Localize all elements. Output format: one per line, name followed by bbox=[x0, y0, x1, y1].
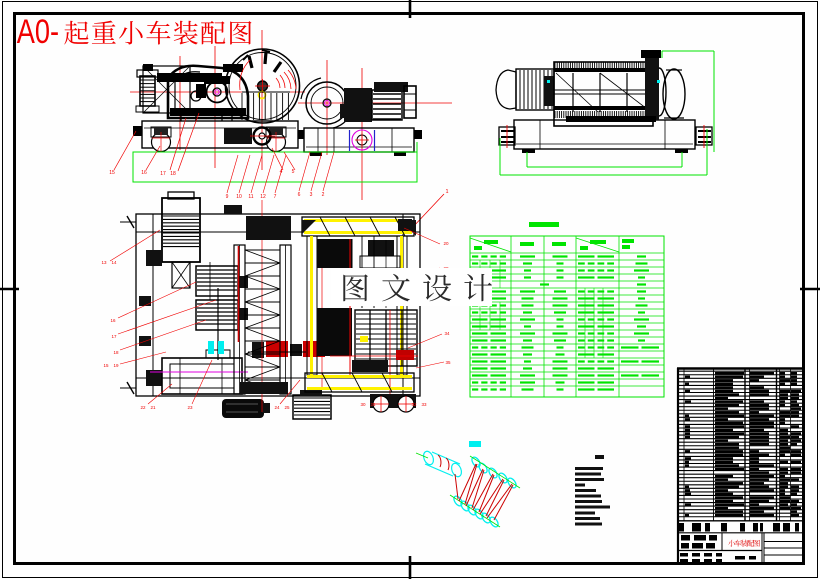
svg-text:5: 5 bbox=[292, 169, 295, 175]
svg-text:14: 14 bbox=[111, 260, 117, 265]
svg-text:16: 16 bbox=[110, 318, 116, 323]
svg-text:15: 15 bbox=[103, 363, 109, 368]
svg-text:20: 20 bbox=[443, 241, 449, 246]
svg-text:31: 31 bbox=[370, 402, 376, 407]
svg-text:2: 2 bbox=[322, 192, 325, 198]
svg-text:19: 19 bbox=[113, 363, 119, 368]
svg-text:11: 11 bbox=[248, 194, 253, 200]
svg-text:25: 25 bbox=[284, 405, 290, 410]
svg-text:32: 32 bbox=[411, 402, 417, 407]
svg-text:9: 9 bbox=[226, 194, 229, 200]
svg-text:15: 15 bbox=[109, 170, 115, 176]
svg-text:33: 33 bbox=[421, 402, 427, 407]
svg-text:35: 35 bbox=[445, 360, 451, 365]
svg-text:12: 12 bbox=[260, 194, 266, 200]
svg-text:22: 22 bbox=[140, 405, 146, 410]
svg-text:16: 16 bbox=[141, 170, 147, 176]
svg-text:18: 18 bbox=[113, 350, 119, 355]
svg-text:17: 17 bbox=[111, 334, 117, 339]
svg-text:7: 7 bbox=[274, 194, 277, 200]
svg-text:18: 18 bbox=[170, 171, 176, 177]
svg-text:A0-: A0- bbox=[17, 12, 59, 51]
svg-text:13: 13 bbox=[101, 260, 107, 265]
svg-text:21: 21 bbox=[150, 405, 156, 410]
svg-text:17: 17 bbox=[160, 171, 166, 177]
svg-text:23: 23 bbox=[187, 405, 193, 410]
svg-text:3: 3 bbox=[310, 192, 313, 198]
svg-text:6: 6 bbox=[298, 192, 301, 198]
svg-text:10: 10 bbox=[236, 194, 242, 200]
svg-text:1: 1 bbox=[445, 189, 448, 195]
svg-text:24: 24 bbox=[274, 405, 280, 410]
svg-text:30: 30 bbox=[360, 402, 366, 407]
svg-text:34: 34 bbox=[444, 331, 450, 336]
